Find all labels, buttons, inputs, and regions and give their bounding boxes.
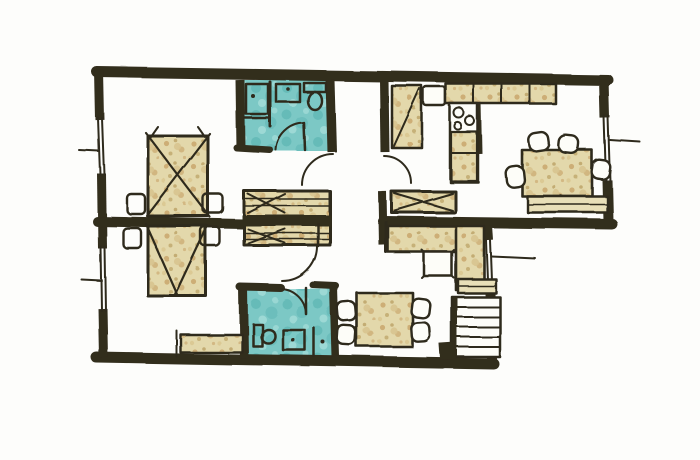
wall-dining-bottom bbox=[383, 221, 612, 224]
hall-to-bedroom-door-arc bbox=[302, 154, 333, 185]
sink-faucet-icon bbox=[286, 87, 290, 91]
sofa-horizontal bbox=[388, 226, 458, 252]
staircase bbox=[439, 297, 500, 361]
bathroom-top-floor bbox=[243, 80, 331, 151]
dining-chair-top-1 bbox=[528, 132, 550, 153]
shower-drain-icon bbox=[251, 94, 255, 98]
wall-bathroom-top-left bbox=[240, 80, 241, 149]
wall-top bbox=[97, 72, 608, 80]
bench-dresser bbox=[180, 334, 242, 352]
lower-cabinet bbox=[451, 132, 477, 181]
bedroom-top-left bbox=[127, 127, 223, 217]
wall-bathroom-top-stub bbox=[237, 148, 270, 150]
wall-right-lower-a bbox=[487, 225, 488, 240]
floor-plan-drawing bbox=[0, 0, 700, 460]
wall-bathroom-top-right bbox=[330, 80, 332, 152]
hall-to-kitchen-door-arc bbox=[384, 156, 411, 183]
wall-hall-right bbox=[382, 191, 383, 245]
nightstand-top-left bbox=[127, 194, 145, 214]
bathroom-top-door-leaf bbox=[304, 123, 305, 150]
wall-bathroom-bottom-topright bbox=[313, 285, 336, 286]
window-left-upper bbox=[79, 118, 104, 174]
square-table-chair-left-2 bbox=[337, 325, 356, 345]
window-left-lower bbox=[81, 246, 105, 310]
wall-bottom bbox=[96, 357, 494, 364]
dining-chair-left bbox=[505, 165, 525, 188]
wall-left-b bbox=[101, 173, 102, 248]
shower-drain-bottom-icon bbox=[321, 340, 325, 344]
dining-room bbox=[505, 132, 611, 212]
hall-lower-door-arc bbox=[282, 246, 317, 281]
nightstand-bottom-left bbox=[123, 228, 141, 248]
coffee-table bbox=[424, 252, 452, 276]
wardrobe-hall bbox=[391, 191, 455, 212]
wall-right-upper-a bbox=[604, 79, 605, 118]
square-table-chair-right-1 bbox=[411, 298, 431, 319]
wall-bathroom-bottom-right bbox=[334, 287, 336, 357]
floor-plan-canvas bbox=[0, 0, 700, 460]
wall-left-a bbox=[99, 70, 100, 120]
wall-left-c bbox=[102, 308, 103, 357]
stair-newel-block bbox=[439, 342, 456, 360]
dining-chair-top-2 bbox=[558, 135, 580, 154]
bed-bottom bbox=[148, 226, 206, 296]
wall-between-bedrooms bbox=[97, 221, 243, 224]
dining-table bbox=[522, 150, 592, 196]
square-table-chair-left-1 bbox=[337, 301, 357, 321]
square-table-chair-right-2 bbox=[411, 322, 430, 342]
wall-bathroom-bottom-top bbox=[240, 287, 281, 288]
dining-chair-right bbox=[591, 159, 611, 180]
wall-kitchen-left bbox=[384, 80, 385, 152]
bedroom-bottom-left bbox=[123, 224, 242, 356]
fridge bbox=[424, 87, 446, 106]
square-table bbox=[357, 293, 413, 347]
sink-drain-icon bbox=[291, 338, 295, 342]
